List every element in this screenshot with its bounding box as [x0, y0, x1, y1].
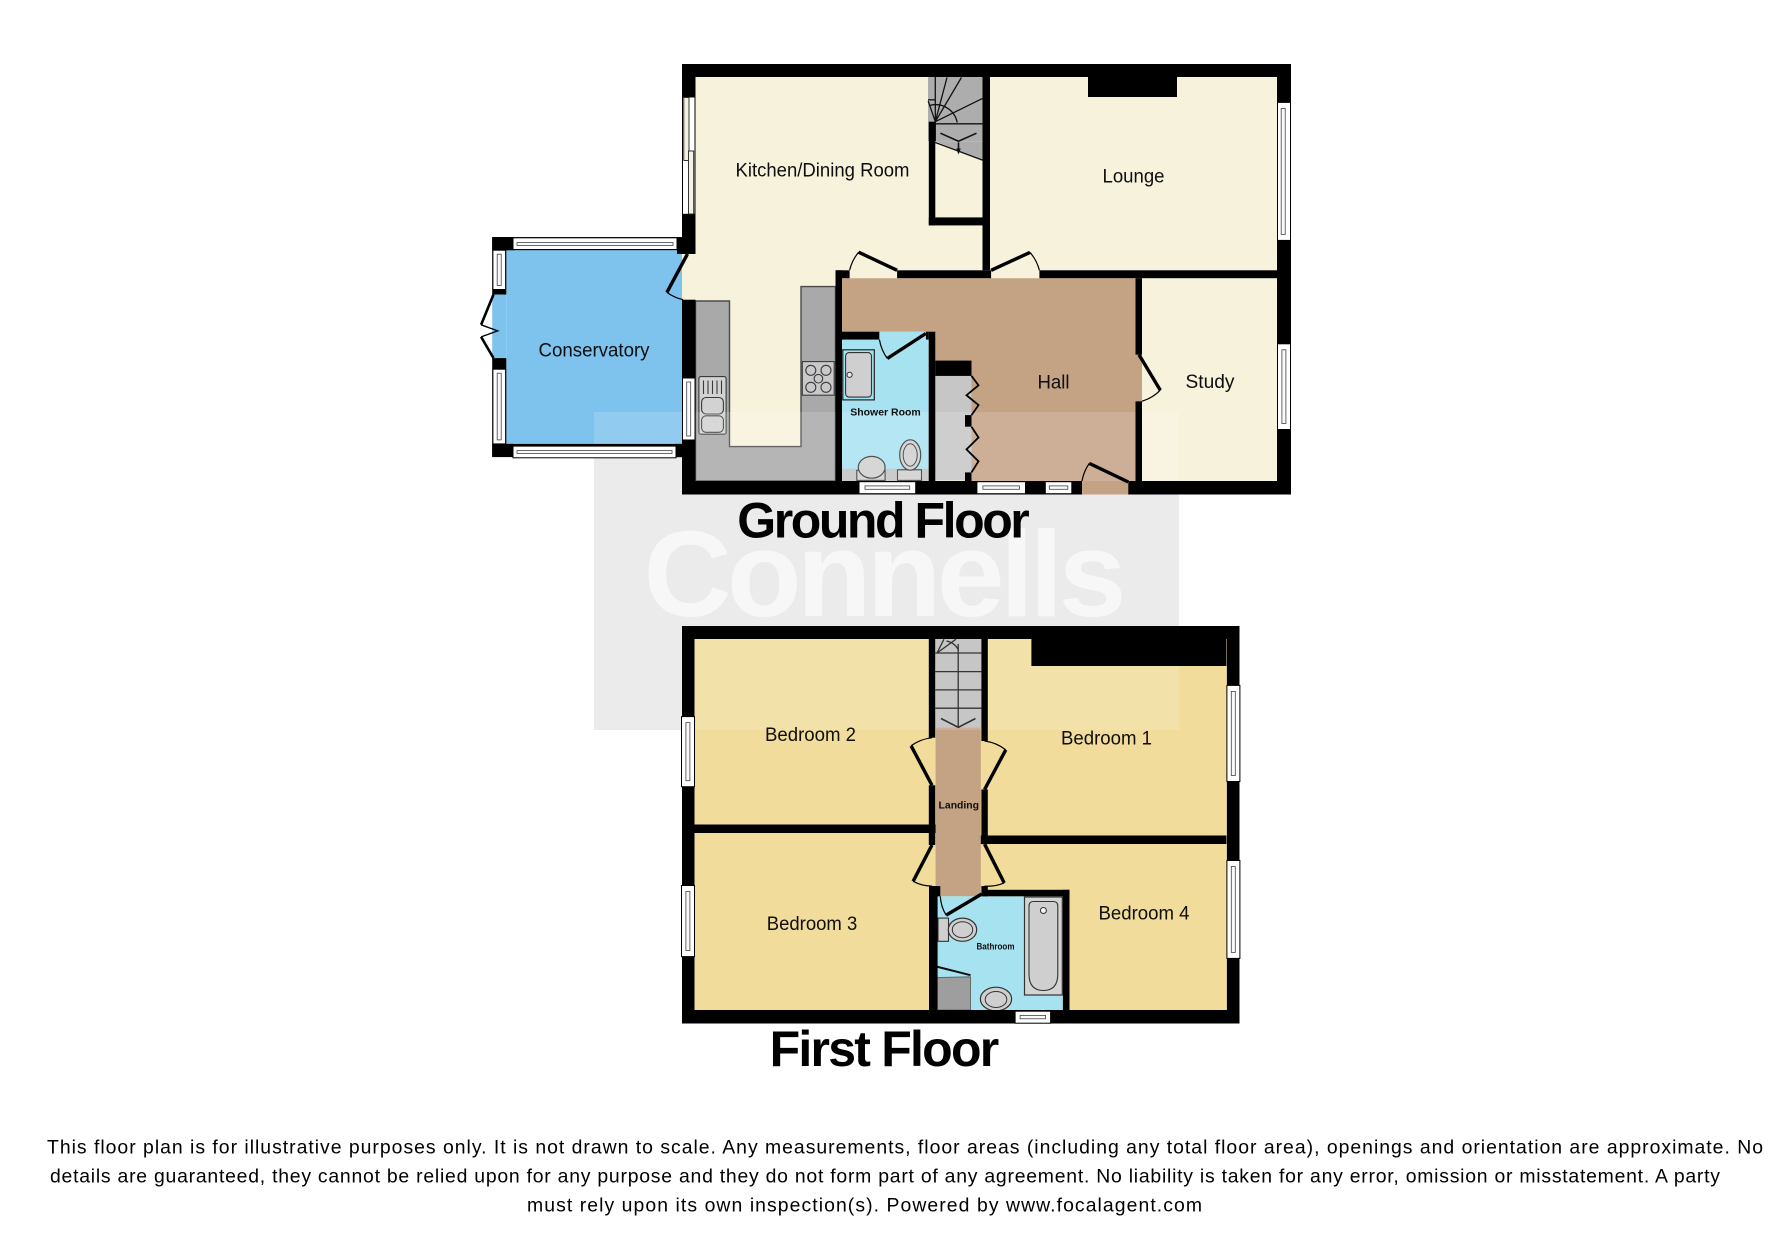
svg-text:Conservatory: Conservatory	[539, 340, 650, 362]
svg-text:Bedroom 3: Bedroom 3	[767, 913, 858, 935]
svg-text:Hall: Hall	[1038, 372, 1070, 394]
svg-text:must rely upon its own inspect: must rely upon its own inspection(s). Po…	[527, 1195, 1202, 1217]
svg-text:details are guaranteed, they c: details are guaranteed, they cannot be r…	[50, 1166, 1720, 1188]
svg-text:Bathroom: Bathroom	[977, 941, 1015, 951]
svg-text:This floor plan is for illustr: This floor plan is for illustrative purp…	[47, 1137, 1763, 1159]
svg-text:First Floor: First Floor	[770, 1021, 1000, 1077]
svg-text:Landing: Landing	[939, 801, 980, 812]
svg-text:Ground Floor: Ground Floor	[737, 493, 1030, 549]
svg-text:Shower Room: Shower Room	[850, 408, 921, 419]
svg-text:Bedroom 4: Bedroom 4	[1099, 903, 1190, 925]
svg-text:Bedroom 1: Bedroom 1	[1061, 728, 1152, 750]
svg-text:Study: Study	[1186, 371, 1235, 393]
svg-text:Lounge: Lounge	[1103, 165, 1165, 187]
svg-text:Kitchen/Dining Room: Kitchen/Dining Room	[736, 160, 910, 182]
svg-text:Bedroom 2: Bedroom 2	[765, 724, 856, 746]
